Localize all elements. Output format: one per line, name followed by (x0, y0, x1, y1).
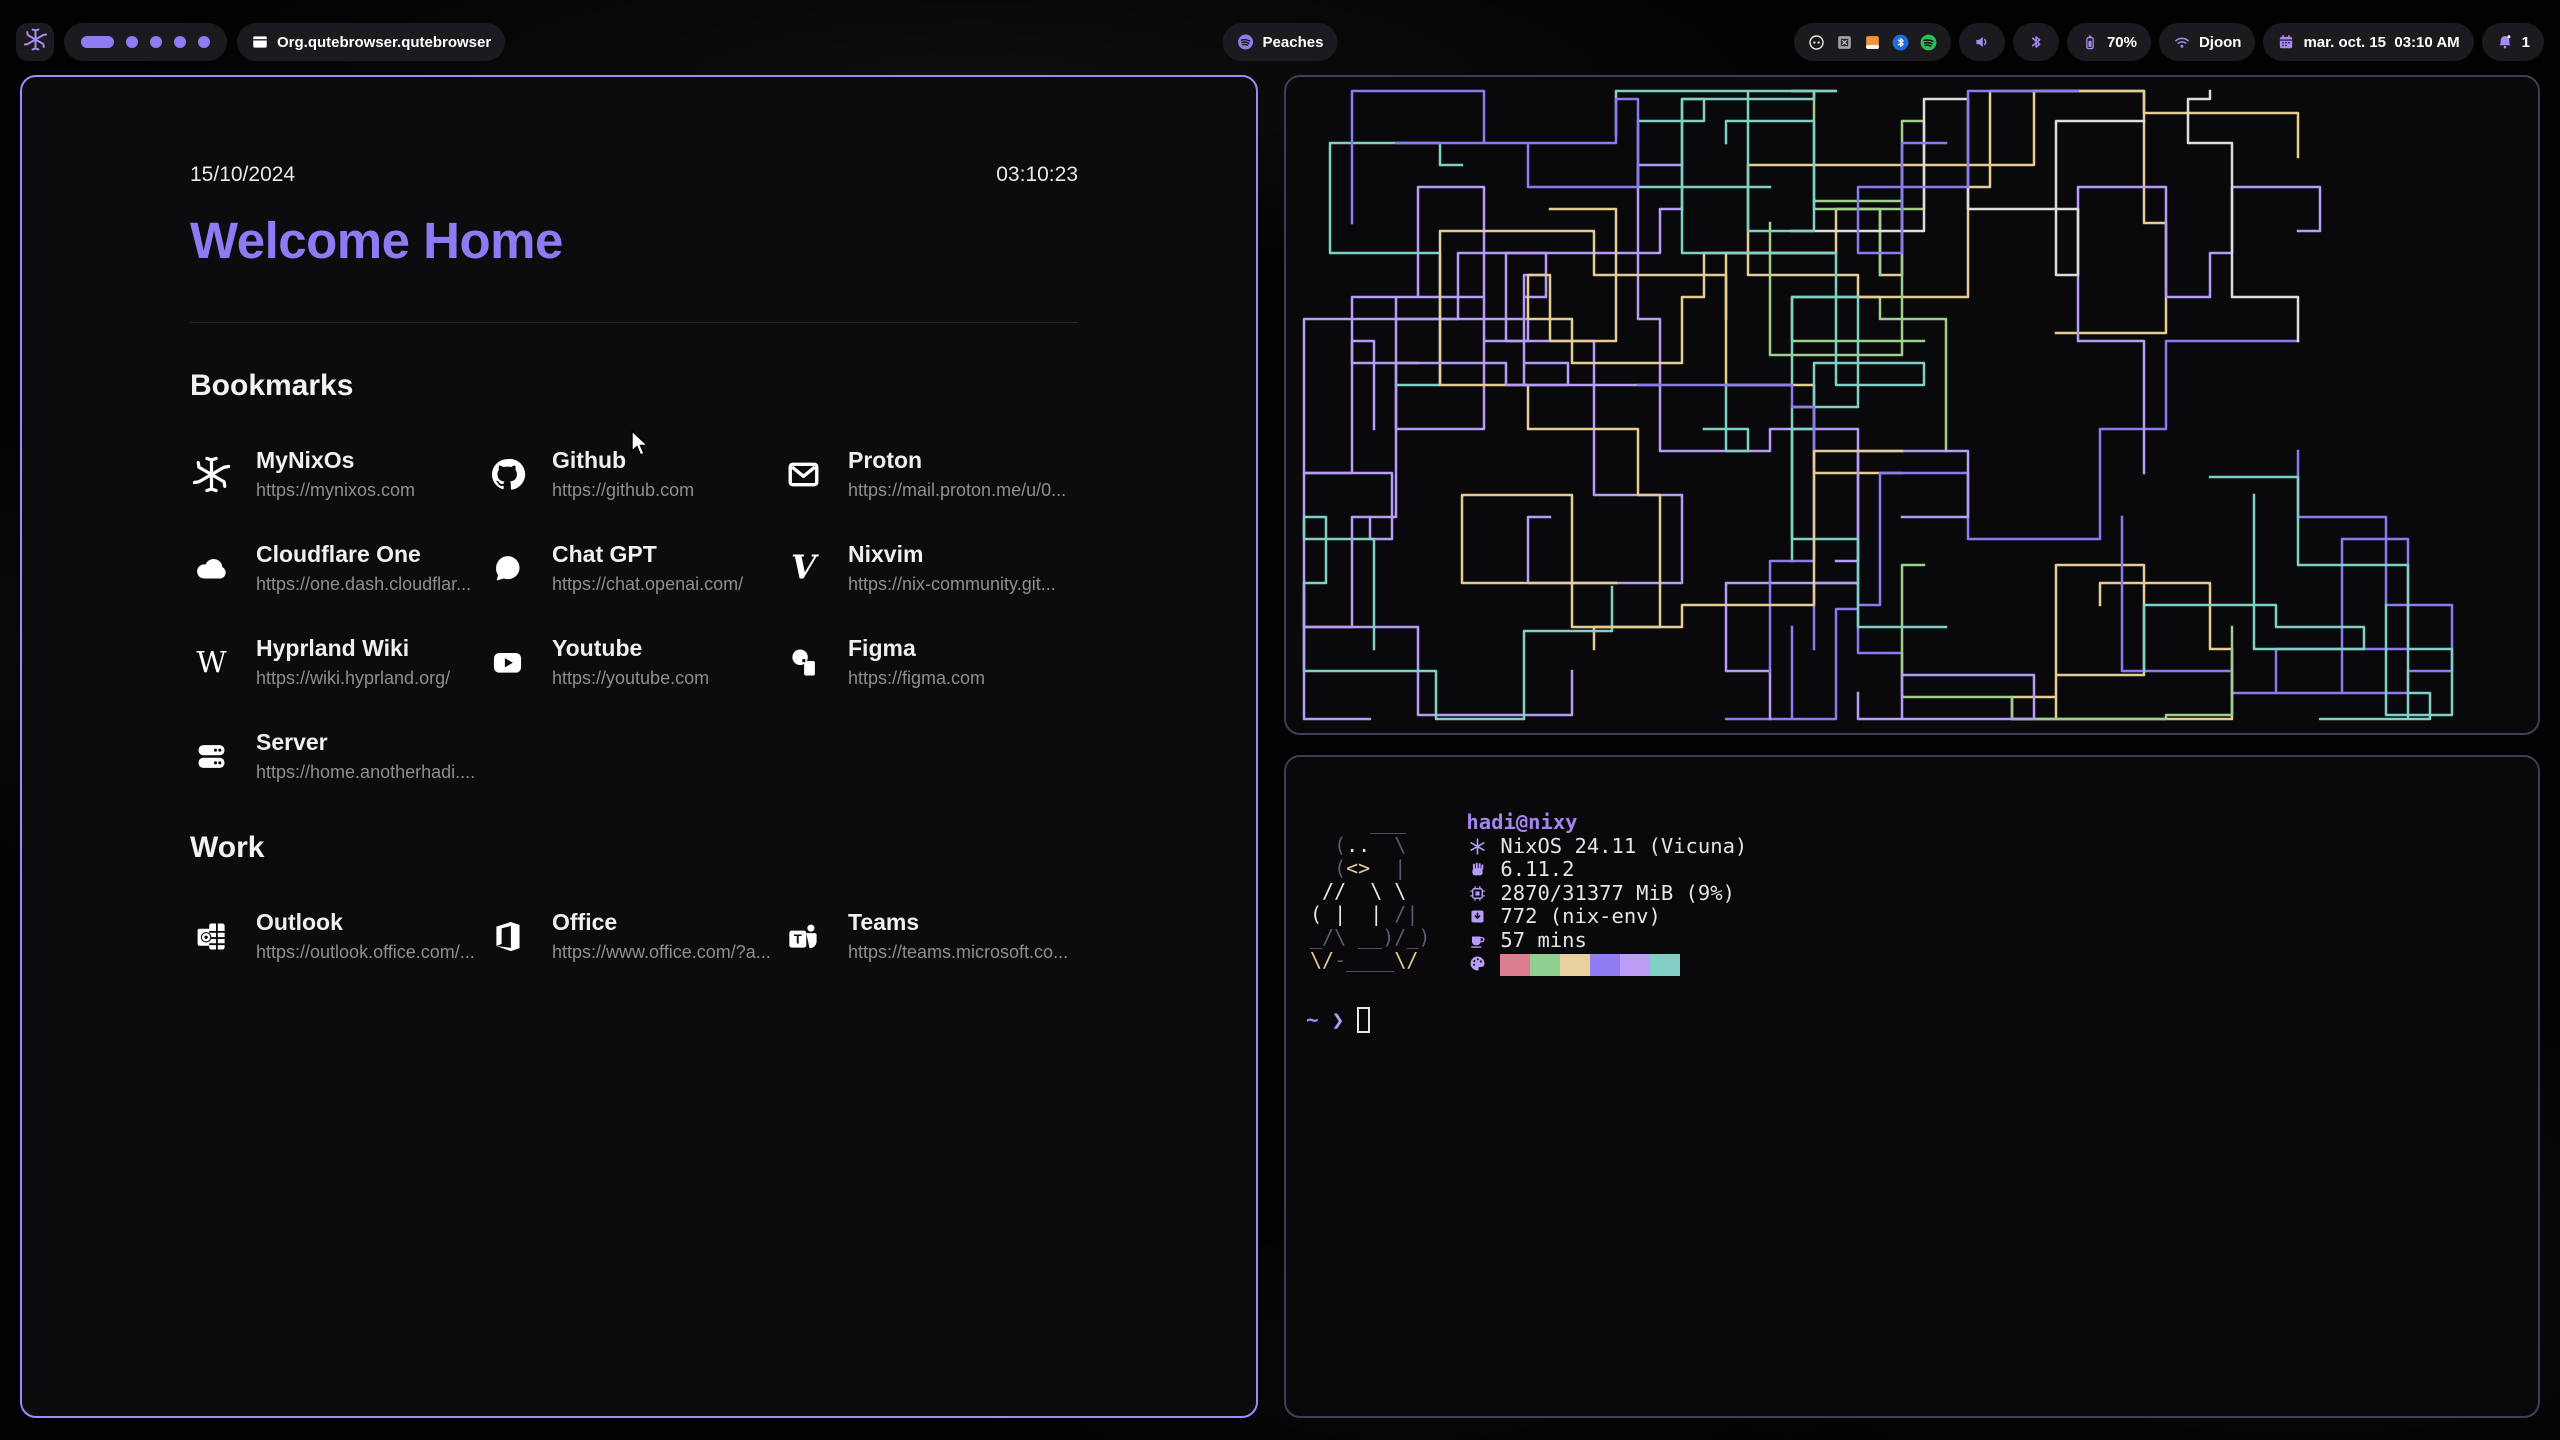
wifi-icon (2173, 33, 2191, 51)
pipes-screensaver-window[interactable] (1284, 75, 2540, 735)
workspace-dot-1[interactable] (81, 36, 114, 48)
bookmark-url: https://mynixos.com (256, 480, 415, 501)
bookmark-name: Github (552, 447, 694, 474)
server-icon (190, 735, 232, 777)
bookmark-name: Hyprland Wiki (256, 635, 450, 662)
qutebrowser-window[interactable]: 15/10/2024 03:10:23 Welcome Home Bookmar… (20, 75, 1258, 1418)
svg-text:V: V (790, 550, 818, 587)
bell-icon (2496, 33, 2514, 51)
section-heading: Bookmarks (190, 369, 1078, 403)
palette-icon (1466, 954, 1488, 973)
active-window-title-pill: Org.qutebrowser.qutebrowser (237, 23, 505, 61)
palette-swatch (1620, 954, 1650, 976)
svg-text:W: W (196, 644, 227, 678)
mouse-cursor (630, 430, 656, 458)
wifi-pill[interactable]: Djoon (2159, 23, 2256, 61)
workspace-dot-4[interactable] (174, 36, 186, 48)
bookmark-item[interactable]: Outlookhttps://outlook.office.com/... (190, 907, 486, 965)
files-app-icon[interactable] (1863, 33, 1882, 52)
section-heading: Work (190, 831, 1078, 865)
bar-right-modules: 70%Djoonmar. oct. 15 03:10 AM1 (1794, 23, 2544, 61)
prompt-symbol: ❯ (1332, 1008, 1345, 1032)
prompt-cwd: ~ (1306, 1008, 1319, 1032)
tux-ascii-art: ___ (.. \ (<> | // \ \ ( | | /| _/\ __)/… (1310, 811, 1430, 976)
kernel-icon (1466, 860, 1488, 879)
bluetooth-badge-icon[interactable] (1891, 33, 1910, 52)
bookmark-name: Teams (848, 909, 1068, 936)
workspace-indicator[interactable] (64, 23, 227, 61)
memory-icon (1466, 884, 1488, 903)
bookmark-url: https://home.anotherhadi.... (256, 762, 475, 783)
fastfetch-row: 57 mins (1466, 929, 1747, 953)
bookmark-url: https://teams.microsoft.co... (848, 942, 1068, 963)
divider (190, 322, 1078, 323)
pipes-art (1286, 77, 2538, 733)
packages-icon (1466, 907, 1488, 926)
bookmark-name: Figma (848, 635, 985, 662)
bookmark-name: Nixvim (848, 541, 1056, 568)
cast-icon[interactable] (1807, 33, 1826, 52)
notifications-pill[interactable]: 1 (2482, 23, 2544, 61)
bookmark-item[interactable]: WHyprland Wikihttps://wiki.hyprland.org/ (190, 633, 486, 691)
calendar-icon (2277, 33, 2295, 51)
battery-pill[interactable]: 70% (2067, 23, 2151, 61)
fastfetch-row: 2870/31377 MiB (9%) (1466, 882, 1747, 906)
bookmark-url: https://outlook.office.com/... (256, 942, 475, 963)
palette-swatch (1650, 954, 1680, 976)
fastfetch-row: NixOS 24.11 (Vicuna) (1466, 835, 1747, 859)
bluetooth-icon (2027, 33, 2045, 51)
palette-swatch (1590, 954, 1620, 976)
palette-row (1466, 952, 1747, 976)
bookmark-grid: Outlookhttps://outlook.office.com/...Off… (190, 907, 1078, 965)
svg-text:T: T (793, 931, 801, 946)
fastfetch-row: 772 (nix-env) (1466, 905, 1747, 929)
window-icon (251, 33, 269, 51)
workspace-dot-2[interactable] (126, 36, 138, 48)
nix-snowflake-icon (24, 28, 47, 56)
palette-swatch (1530, 954, 1560, 976)
bookmark-name: Outlook (256, 909, 475, 936)
bookmark-item[interactable]: Officehttps://www.office.com/?a... (486, 907, 782, 965)
terminal-window[interactable]: ___ (.. \ (<> | // \ \ ( | | /| _/\ __)/… (1284, 755, 2540, 1418)
bookmark-name: Cloudflare One (256, 541, 471, 568)
bookmark-url: https://github.com (552, 480, 694, 501)
bookmark-item[interactable]: Serverhttps://home.anotherhadi.... (190, 727, 486, 785)
bookmark-item[interactable]: Cloudflare Onehttps://one.dash.cloudflar… (190, 539, 486, 597)
terminal-cursor (1357, 1007, 1370, 1033)
media-track-label: Peaches (1263, 34, 1324, 51)
nixvim-icon: V (782, 547, 824, 589)
palette-swatch (1500, 954, 1530, 976)
workspace-dot-3[interactable] (150, 36, 162, 48)
bookmark-name: Office (552, 909, 771, 936)
workspace-dot-5[interactable] (198, 36, 210, 48)
user-host: hadi@nixy (1466, 811, 1747, 835)
speaker-icon (1973, 33, 1991, 51)
clock-pill[interactable]: mar. oct. 15 03:10 AM (2263, 23, 2473, 61)
active-window-title: Org.qutebrowser.qutebrowser (277, 34, 491, 51)
app-launcher-button[interactable] (16, 23, 54, 61)
startpage: 15/10/2024 03:10:23 Welcome Home Bookmar… (22, 77, 1256, 1416)
bookmark-url: https://chat.openai.com/ (552, 574, 743, 595)
github-icon (486, 453, 528, 495)
page-title: Welcome Home (190, 211, 1078, 270)
bookmark-url: https://www.office.com/?a... (552, 942, 771, 963)
bookmark-name: Proton (848, 447, 1066, 474)
status-bar: Org.qutebrowser.qutebrowser Peaches 70%D… (0, 23, 2560, 61)
notifications-label: 1 (2522, 34, 2530, 51)
box-app-icon[interactable] (1835, 33, 1854, 52)
cloud-icon (190, 547, 232, 589)
startpage-time: 03:10:23 (996, 163, 1078, 187)
bookmark-item[interactable]: TTeamshttps://teams.microsoft.co... (782, 907, 1078, 965)
bookmark-item[interactable]: MyNixOshttps://mynixos.com (190, 445, 486, 503)
desktop: { "topbar": { "launcher": { "icon": "nix… (0, 0, 2560, 1440)
bookmark-url: https://mail.proton.me/u/0... (848, 480, 1066, 501)
fastfetch-row: 6.11.2 (1466, 858, 1747, 882)
terminal-color-palette (1500, 954, 1680, 976)
battery-icon (2081, 33, 2099, 51)
bookmark-sections: BookmarksMyNixOshttps://mynixos.comGithu… (190, 369, 1078, 965)
bluetooth-pill[interactable] (2013, 23, 2059, 61)
volume-pill[interactable] (1959, 23, 2005, 61)
youtube-icon (486, 641, 528, 683)
bookmark-item[interactable]: Chat GPThttps://chat.openai.com/ (486, 539, 782, 597)
media-player-pill[interactable]: Peaches (1223, 23, 1338, 61)
outlook-icon (190, 915, 232, 957)
bookmark-name: MyNixOs (256, 447, 415, 474)
bookmark-item[interactable]: VNixvimhttps://nix-community.git... (782, 539, 1078, 597)
office-icon (486, 915, 528, 957)
clock-label: mar. oct. 15 03:10 AM (2303, 34, 2459, 51)
bookmark-item[interactable]: Protonhttps://mail.proton.me/u/0... (782, 445, 1078, 503)
uptime-icon (1466, 931, 1488, 950)
bookmark-item[interactable]: Youtubehttps://youtube.com (486, 633, 782, 691)
fastfetch-value: 772 (nix-env) (1500, 905, 1660, 929)
battery-label: 70% (2107, 34, 2137, 51)
mail-icon (782, 453, 824, 495)
spotify-badge-icon[interactable] (1919, 33, 1938, 52)
nix-snowflake-icon (190, 453, 232, 495)
system-tray (1794, 23, 1951, 61)
bookmark-url: https://youtube.com (552, 668, 709, 689)
wifi-label: Djoon (2199, 34, 2242, 51)
shell-prompt[interactable]: ~ ❯ (1306, 1007, 1370, 1033)
spotify-icon (1237, 33, 1255, 51)
palette-swatch (1560, 954, 1590, 976)
fastfetch-value: 57 mins (1500, 929, 1586, 953)
fastfetch-value: 6.11.2 (1500, 858, 1574, 882)
bar-left-modules: Org.qutebrowser.qutebrowser (16, 23, 505, 61)
fastfetch-output: ___ (.. \ (<> | // \ \ ( | | /| _/\ __)/… (1310, 811, 1747, 976)
fastfetch-value: 2870/31377 MiB (9%) (1500, 882, 1735, 906)
bookmark-name: Server (256, 729, 475, 756)
bookmark-name: Chat GPT (552, 541, 743, 568)
date-time-row: 15/10/2024 03:10:23 (190, 163, 1078, 187)
bookmark-item[interactable]: Figmahttps://figma.com (782, 633, 1078, 691)
os-icon (1466, 837, 1488, 856)
bookmark-url: https://figma.com (848, 668, 985, 689)
chat-icon (486, 547, 528, 589)
bookmark-url: https://one.dash.cloudflar... (256, 574, 471, 595)
startpage-date: 15/10/2024 (190, 163, 295, 187)
figma-icon (782, 641, 824, 683)
bookmark-url: https://wiki.hyprland.org/ (256, 668, 450, 689)
fastfetch-info: hadi@nixy NixOS 24.11 (Vicuna)6.11.22870… (1466, 811, 1747, 976)
bookmark-name: Youtube (552, 635, 709, 662)
fastfetch-value: NixOS 24.11 (Vicuna) (1500, 835, 1747, 859)
wikipedia-icon: W (190, 641, 232, 683)
teams-icon: T (782, 915, 824, 957)
bookmark-url: https://nix-community.git... (848, 574, 1056, 595)
bookmark-grid: MyNixOshttps://mynixos.comGithubhttps://… (190, 445, 1078, 785)
